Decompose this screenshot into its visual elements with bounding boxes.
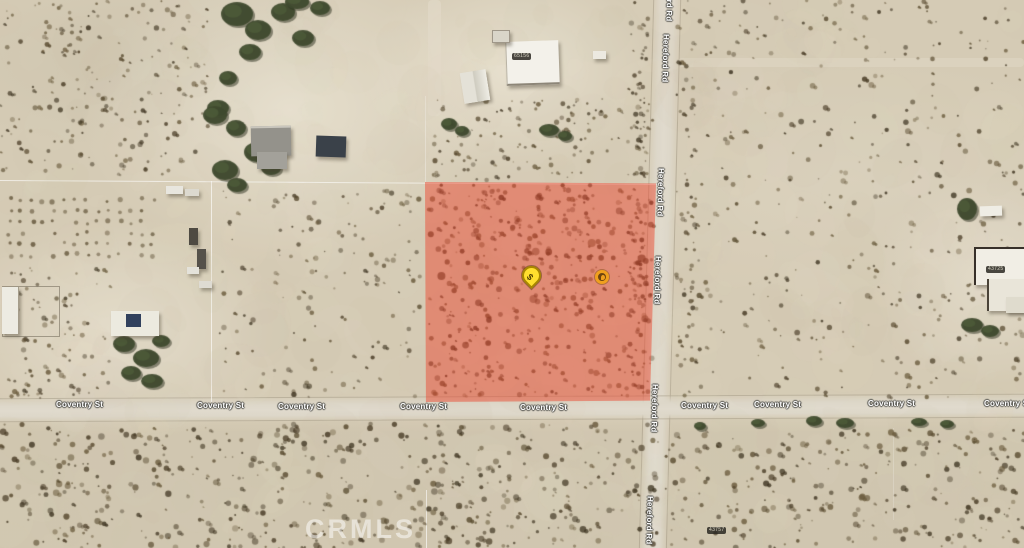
vehicle-truck	[189, 228, 198, 245]
building-barn	[460, 69, 491, 104]
building-right-trailer	[980, 206, 1002, 217]
road-label-hereford: Hereford Rd	[644, 496, 654, 545]
road-label-hereford: Hereford Rd	[652, 256, 662, 305]
address-badge: 43757	[707, 527, 726, 534]
road-label-coventry: Coventry St	[868, 399, 915, 408]
address-badge: 65156	[512, 53, 531, 60]
building-shed	[492, 30, 510, 43]
address-badge: 43725	[986, 266, 1005, 273]
building-small-white	[593, 51, 606, 59]
building-left-white	[2, 287, 19, 334]
building-dark-roof	[316, 135, 347, 157]
road-label-coventry: Coventry St	[278, 402, 325, 411]
building-large-white-roof	[505, 40, 560, 86]
road-label-coventry: Coventry St	[400, 402, 447, 411]
building-right-garage	[1006, 297, 1024, 313]
vehicle-trailer	[187, 267, 199, 274]
road-label-coventry: Coventry St	[754, 400, 801, 409]
road-label-coventry: Coventry St	[984, 399, 1024, 408]
road-label-hereford: Hereford Rd	[660, 34, 670, 83]
road-label-coventry: Coventry St	[197, 401, 244, 410]
road-label-hereford: Hereford Rd	[655, 168, 665, 217]
highlighted-parcel[interactable]	[425, 182, 656, 402]
vehicle-trailer	[185, 189, 199, 196]
road-label-coventry: Coventry St	[681, 401, 728, 410]
road-label-coventry: Coventry St	[56, 400, 103, 409]
satellite-map[interactable]: Hereford Rd Hereford Rd Hereford Rd Here…	[0, 0, 1024, 548]
vehicle-trailer	[166, 186, 183, 194]
road-label-coventry: Coventry St	[520, 403, 567, 412]
vehicle-trailer	[199, 281, 212, 288]
price-pin-marker[interactable]: $	[521, 265, 539, 289]
photo-marker-icon	[601, 275, 605, 280]
crmls-watermark: CRMLS	[305, 514, 416, 545]
building-gray-house-wing	[257, 152, 287, 169]
road-label-hereford: Hereford Rd	[649, 384, 659, 433]
road-label-hereford: Hereford Rd	[664, 0, 674, 22]
photo-circle-marker[interactable]	[595, 270, 609, 284]
vehicle-truck	[197, 249, 206, 269]
building-left-house-blue-section	[126, 314, 141, 327]
